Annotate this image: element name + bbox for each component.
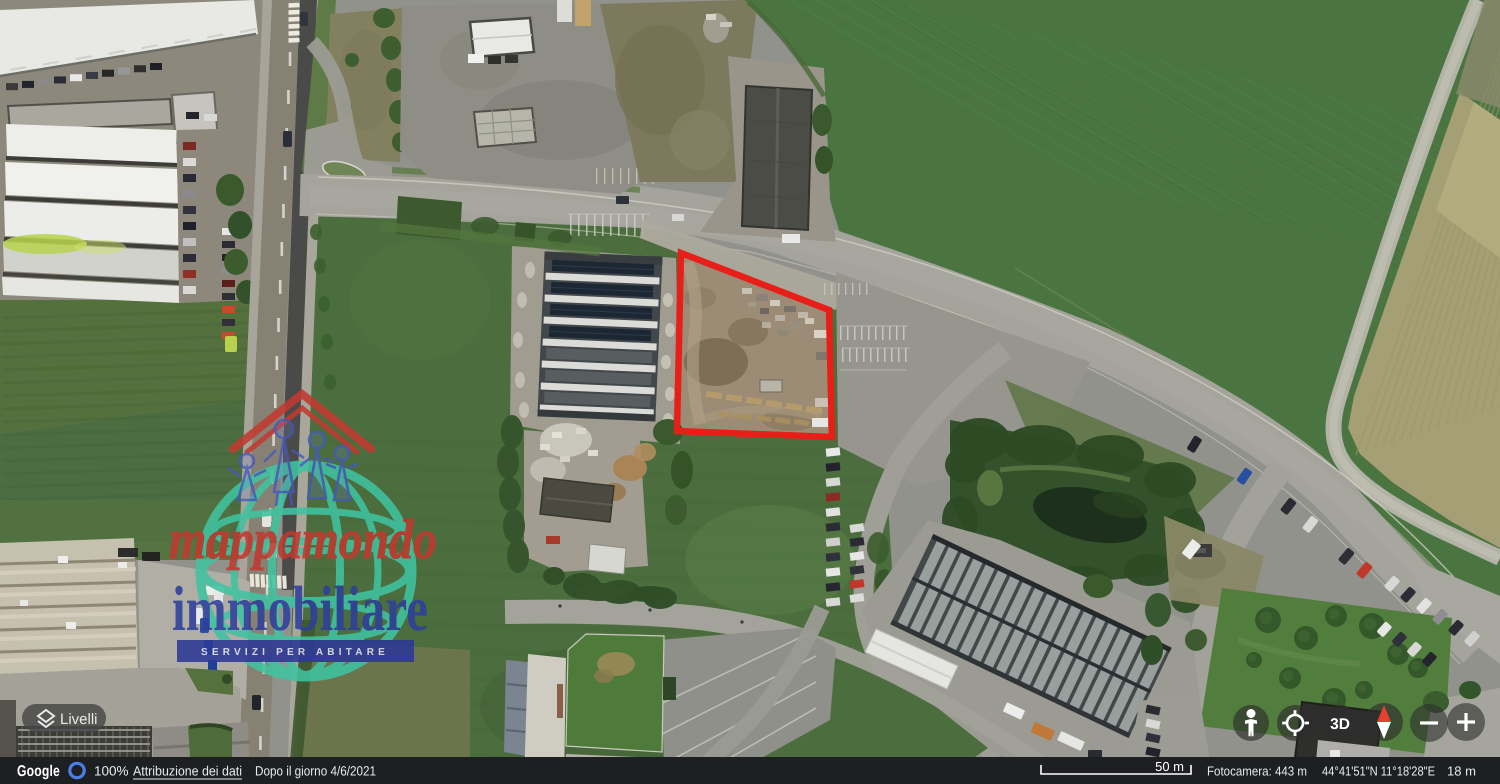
svg-text:Attribuzione dei dati: Attribuzione dei dati — [133, 764, 242, 779]
svg-text:44°41'51"N 11°18'28"E: 44°41'51"N 11°18'28"E — [1322, 764, 1435, 779]
svg-text:100%: 100% — [94, 764, 129, 779]
svg-text:Google: Google — [17, 763, 60, 780]
svg-text:immobiliare: immobiliare — [172, 573, 428, 644]
svg-text:50 m: 50 m — [1155, 759, 1184, 774]
svg-text:Livelli: Livelli — [60, 711, 98, 728]
svg-text:Fotocamera: 443 m: Fotocamera: 443 m — [1207, 764, 1307, 779]
svg-text:SERVIZI PER ABITARE: SERVIZI PER ABITARE — [201, 647, 389, 658]
svg-text:18 m: 18 m — [1447, 764, 1476, 779]
svg-text:3D: 3D — [1330, 716, 1350, 733]
svg-text:Dopo il giorno 4/6/2021: Dopo il giorno 4/6/2021 — [255, 764, 376, 779]
svg-text:mappamondo: mappamondo — [169, 509, 437, 571]
